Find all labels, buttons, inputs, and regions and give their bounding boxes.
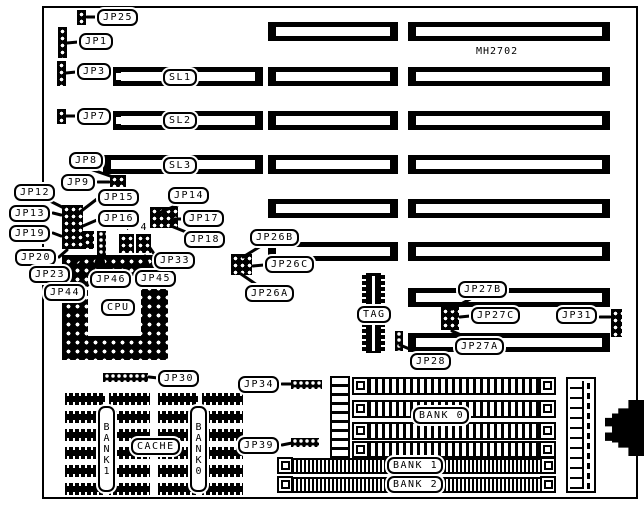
- callout-jp27a: JP27A: [455, 338, 504, 355]
- callout-jp25: JP25: [97, 9, 138, 26]
- callout-jp9: JP9: [61, 174, 95, 191]
- label-sl2: SL2: [163, 112, 197, 129]
- label-tag: TAG: [357, 306, 391, 323]
- callout-jp14: JP14: [168, 187, 209, 204]
- callout-jp18: JP18: [184, 231, 225, 248]
- motherboard-diagram: MH2702: [0, 0, 644, 505]
- callout-jp44: JP44: [44, 284, 85, 301]
- callout-jp8: JP8: [69, 152, 103, 169]
- label-bank0: BANK 0: [413, 407, 469, 424]
- callout-jp31: JP31: [556, 307, 597, 324]
- callout-jp3: JP3: [77, 63, 111, 80]
- callout-jp7: JP7: [77, 108, 111, 125]
- callout-jp20: JP20: [15, 249, 56, 266]
- label-bank2: BANK 2: [387, 476, 443, 493]
- callout-jp16: JP16: [98, 210, 139, 227]
- callout-jp12: JP12: [14, 184, 55, 201]
- label-cache-bank1-vertical: BANK1: [98, 406, 115, 492]
- callout-jp1: JP1: [79, 33, 113, 50]
- callout-jp46: JP46: [90, 271, 131, 288]
- callout-jp28: JP28: [410, 353, 451, 370]
- callout-jp34: JP34: [238, 376, 279, 393]
- label-cache-bank0-vertical: BANK0: [190, 406, 207, 492]
- label-sl1: SL1: [163, 69, 197, 86]
- callout-jp30: JP30: [158, 370, 199, 387]
- label-cpu: CPU: [101, 299, 135, 316]
- label-cache: CACHE: [131, 438, 180, 455]
- callout-jp27b: JP27B: [458, 281, 507, 298]
- callout-jp26a: JP26A: [245, 285, 294, 302]
- label-bank1: BANK 1: [387, 457, 443, 474]
- label-sl3: SL3: [163, 157, 197, 174]
- callout-jp23: JP23: [29, 266, 70, 283]
- callout-jp27c: JP27C: [471, 307, 520, 324]
- callout-jp39: JP39: [238, 437, 279, 454]
- callout-jp17: JP17: [183, 210, 224, 227]
- callout-jp15: JP15: [98, 189, 139, 206]
- callout-jp26b: JP26B: [250, 229, 299, 246]
- callout-jp13: JP13: [9, 205, 50, 222]
- callout-jp19: JP19: [9, 225, 50, 242]
- callout-jp33: JP33: [154, 252, 195, 269]
- callout-jp26c: JP26C: [265, 256, 314, 273]
- callout-jp45: JP45: [135, 270, 176, 287]
